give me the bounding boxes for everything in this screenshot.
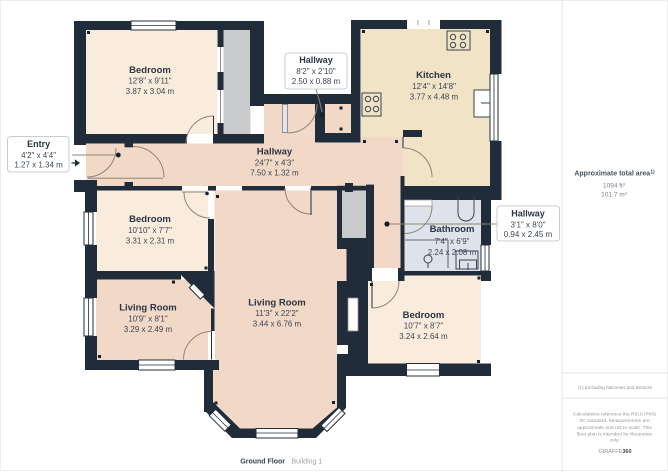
svg-text:2.50 x 0.88 m: 2.50 x 0.88 m xyxy=(292,77,341,86)
svg-text:3.44 x 6.76 m: 3.44 x 6.76 m xyxy=(253,320,302,329)
svg-text:floor plan is intended for ill: floor plan is intended for illustration xyxy=(577,432,653,438)
svg-text:Entry: Entry xyxy=(27,139,50,149)
svg-text:12'8" x 9'11": 12'8" x 9'11" xyxy=(128,77,171,86)
svg-text:101.7 m²: 101.7 m² xyxy=(601,192,627,199)
svg-text:Hallway: Hallway xyxy=(511,209,545,219)
svg-text:Bathroom: Bathroom xyxy=(430,224,475,235)
svg-text:7'4" x 6'9": 7'4" x 6'9" xyxy=(435,237,470,246)
svg-text:24'7" x 4'3": 24'7" x 4'3" xyxy=(255,159,295,168)
svg-text:8'2" x 2'10": 8'2" x 2'10" xyxy=(296,67,336,76)
svg-text:3.31 x 2.31 m: 3.31 x 2.31 m xyxy=(126,237,175,246)
svg-text:Bedroom: Bedroom xyxy=(129,65,171,76)
svg-text:Hallway: Hallway xyxy=(257,147,293,158)
svg-text:3C standard. Measurements are: 3C standard. Measurements are xyxy=(579,418,649,424)
svg-text:Ground Floor: Ground Floor xyxy=(240,459,285,466)
svg-text:only.: only. xyxy=(610,438,620,444)
svg-text:Living Room: Living Room xyxy=(119,303,177,314)
svg-text:4'2" x 4'4": 4'2" x 4'4" xyxy=(21,151,56,160)
svg-text:1.27 x 1.34 m: 1.27 x 1.34 m xyxy=(14,160,63,169)
svg-text:approximate and not to scale.: approximate and not to scale. This xyxy=(577,425,652,431)
svg-text:Bedroom: Bedroom xyxy=(129,214,171,225)
svg-text:3.24 x 2.64 m: 3.24 x 2.64 m xyxy=(399,332,448,341)
svg-text:3.29 x 2.49 m: 3.29 x 2.49 m xyxy=(124,325,173,334)
svg-text:10'9" x 8'1": 10'9" x 8'1" xyxy=(128,315,168,324)
svg-text:10'10" x 7'7": 10'10" x 7'7" xyxy=(128,226,172,235)
svg-text:Kitchen: Kitchen xyxy=(416,70,451,81)
svg-text:Calculations reference the RIC: Calculations reference the RICS IPMS xyxy=(573,412,657,418)
svg-text:0.94 x 2.45 m: 0.94 x 2.45 m xyxy=(504,230,553,239)
svg-text:10'7" x 8'7": 10'7" x 8'7" xyxy=(404,322,444,331)
svg-text:GIRAFFE360: GIRAFFE360 xyxy=(598,449,631,455)
svg-text:Hallway: Hallway xyxy=(299,55,333,65)
svg-text:(1) Excluding balconies and te: (1) Excluding balconies and terraces xyxy=(578,385,653,390)
svg-text:Bedroom: Bedroom xyxy=(403,310,445,321)
svg-text:11'3" x 22'2": 11'3" x 22'2" xyxy=(255,309,298,318)
svg-text:3.87 x 3.04 m: 3.87 x 3.04 m xyxy=(126,87,175,96)
svg-text:12'4" x 14'8": 12'4" x 14'8" xyxy=(412,82,456,91)
svg-text:Building 1: Building 1 xyxy=(292,459,323,466)
svg-text:1094 ft²: 1094 ft² xyxy=(603,183,626,190)
svg-text:Living Room: Living Room xyxy=(248,298,306,309)
svg-text:3'1" x 8'0": 3'1" x 8'0" xyxy=(511,221,546,230)
svg-text:3.77 x 4.48 m: 3.77 x 4.48 m xyxy=(410,93,459,102)
svg-text:2.24 x 2.08 m: 2.24 x 2.08 m xyxy=(428,248,477,257)
svg-text:7.50 x 1.32 m: 7.50 x 1.32 m xyxy=(250,168,299,177)
svg-text:Approximate total area1): Approximate total area1) xyxy=(574,170,655,178)
